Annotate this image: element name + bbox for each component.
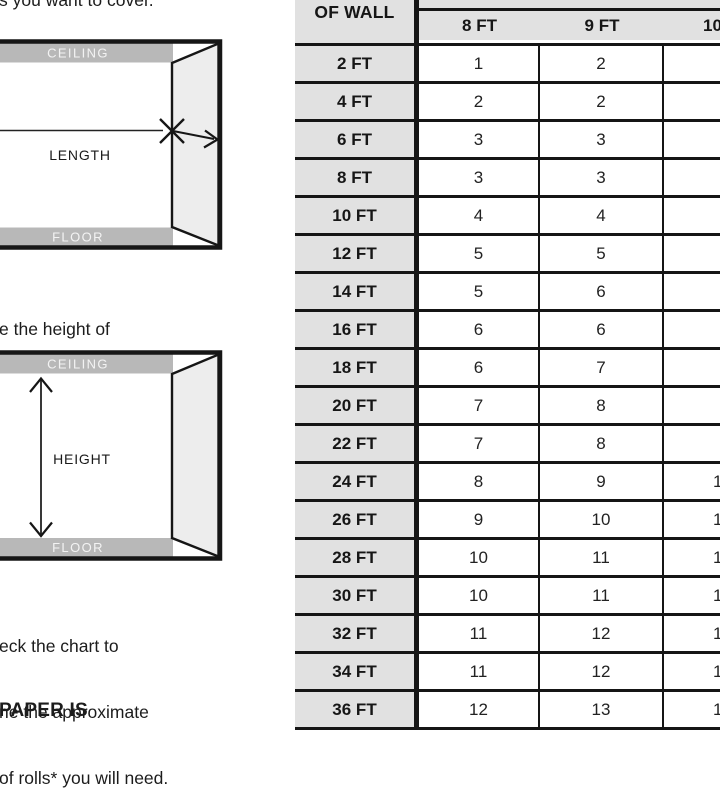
ceiling-label: CEILING [47, 46, 109, 61]
cell-9ft: 12 [540, 654, 664, 689]
cell-9ft: 6 [540, 312, 664, 347]
table-row: 36 FT 12 13 1 [295, 692, 720, 730]
cell-8ft: 2 [419, 84, 540, 119]
table-row: 18 FT 6 7 [295, 350, 720, 388]
length-label: LENGTH [49, 147, 111, 163]
table-row: 22 FT 7 8 [295, 426, 720, 464]
row-label-cell: 36 FT [295, 692, 414, 727]
cell-10ft [664, 198, 720, 233]
header-data-area: 8 FT 9 FT 10 [419, 0, 720, 43]
cell-8ft: 11 [419, 616, 540, 651]
col-header-8ft: 8 FT [419, 11, 540, 40]
side-wall [172, 44, 219, 246]
table-row: 4 FT 2 2 [295, 84, 720, 122]
cell-10ft [664, 274, 720, 309]
corner-header-cell: OF WALL [295, 0, 414, 43]
floor-label: FLOOR [52, 230, 104, 245]
side-wall [172, 355, 219, 557]
cell-10ft: 1 [664, 692, 720, 727]
cell-10ft: 1 [664, 502, 720, 537]
col-header-9ft: 9 FT [540, 11, 664, 40]
cell-9ft: 3 [540, 160, 664, 195]
cell-9ft: 4 [540, 198, 664, 233]
cell-9ft: 2 [540, 84, 664, 119]
table-row: 28 FT 10 11 1 [295, 540, 720, 578]
row-label-cell: 6 FT [295, 122, 414, 157]
table-row: 30 FT 10 11 1 [295, 578, 720, 616]
table-row: 34 FT 11 12 1 [295, 654, 720, 692]
cell-8ft: 7 [419, 426, 540, 461]
row-label-cell: 12 FT [295, 236, 414, 271]
cell-10ft: 1 [664, 540, 720, 575]
table-row: 20 FT 7 8 [295, 388, 720, 426]
cell-10ft: 1 [664, 578, 720, 613]
cell-9ft: 9 [540, 464, 664, 499]
cell-9ft: 12 [540, 616, 664, 651]
row-label-cell: 34 FT [295, 654, 414, 689]
row-label-cell: 20 FT [295, 388, 414, 423]
table-row: 32 FT 11 12 1 [295, 616, 720, 654]
table-row: 10 FT 4 4 [295, 198, 720, 236]
cell-9ft: 10 [540, 502, 664, 537]
cell-8ft: 3 [419, 160, 540, 195]
table-row: 8 FT 3 3 [295, 160, 720, 198]
cell-9ft: 6 [540, 274, 664, 309]
table-row: 14 FT 5 6 [295, 274, 720, 312]
header-top-sliver [419, 0, 720, 8]
row-label-cell: 16 FT [295, 312, 414, 347]
table-row: 16 FT 6 6 [295, 312, 720, 350]
cell-10ft [664, 388, 720, 423]
cell-10ft: 1 [664, 616, 720, 651]
cell-8ft: 5 [419, 236, 540, 271]
cell-10ft: 1 [664, 464, 720, 499]
cell-8ft: 11 [419, 654, 540, 689]
height-label: HEIGHT [53, 451, 111, 467]
rolls-table: OF WALL 8 FT 9 FT 10 2 FT 1 2 4 FT 2 2 6… [295, 0, 720, 730]
table-header: OF WALL 8 FT 9 FT 10 [295, 0, 720, 46]
ceiling-label: CEILING [47, 357, 109, 372]
cell-8ft: 1 [419, 46, 540, 81]
cell-9ft: 8 [540, 426, 664, 461]
table-row: 6 FT 3 3 [295, 122, 720, 160]
cell-10ft [664, 350, 720, 385]
cell-9ft: 2 [540, 46, 664, 81]
cell-10ft: 1 [664, 654, 720, 689]
cell-10ft [664, 312, 720, 347]
cell-9ft: 7 [540, 350, 664, 385]
cell-8ft: 5 [419, 274, 540, 309]
cell-8ft: 10 [419, 578, 540, 613]
cell-8ft: 6 [419, 350, 540, 385]
cell-10ft [664, 426, 720, 461]
table-row: 2 FT 1 2 [295, 46, 720, 84]
cell-8ft: 12 [419, 692, 540, 727]
cell-8ft: 7 [419, 388, 540, 423]
cell-9ft: 11 [540, 578, 664, 613]
room-length-diagram: CEILING FLOOR LENGTH [0, 42, 220, 248]
table-row: 12 FT 5 5 [295, 236, 720, 274]
cell-10ft [664, 84, 720, 119]
table-row: 26 FT 9 10 1 [295, 502, 720, 540]
cell-9ft: 8 [540, 388, 664, 423]
cell-10ft [664, 46, 720, 81]
row-label-cell: 28 FT [295, 540, 414, 575]
row-label-cell: 4 FT [295, 84, 414, 119]
row-label-cell: 26 FT [295, 502, 414, 537]
row-label-cell: 24 FT [295, 464, 414, 499]
row-label-cell: 14 FT [295, 274, 414, 309]
col-header-10ft: 10 [664, 11, 720, 40]
cell-8ft: 4 [419, 198, 540, 233]
cell-10ft [664, 122, 720, 157]
row-label-cell: 22 FT [295, 426, 414, 461]
cell-8ft: 6 [419, 312, 540, 347]
cell-9ft: 11 [540, 540, 664, 575]
row-label-cell: 18 FT [295, 350, 414, 385]
row-label-cell: 30 FT [295, 578, 414, 613]
row-label-cell: 2 FT [295, 46, 414, 81]
cell-8ft: 10 [419, 540, 540, 575]
floor-label: FLOOR [52, 540, 104, 555]
bottom-text-line3: of rolls* you will need. [0, 767, 168, 789]
row-label-cell: 32 FT [295, 616, 414, 651]
row-label-cell: 10 FT [295, 198, 414, 233]
cell-9ft: 13 [540, 692, 664, 727]
cell-9ft: 3 [540, 122, 664, 157]
cell-9ft: 5 [540, 236, 664, 271]
room-height-diagram: CEILING FLOOR HEIGHT [0, 353, 220, 559]
column-headers: 8 FT 9 FT 10 [419, 11, 720, 40]
cell-10ft [664, 236, 720, 271]
cell-8ft: 3 [419, 122, 540, 157]
table-body: 2 FT 1 2 4 FT 2 2 6 FT 3 3 8 FT 3 3 10 F… [295, 46, 720, 730]
cell-10ft [664, 160, 720, 195]
row-label-cell: 8 FT [295, 160, 414, 195]
table-row: 24 FT 8 9 1 [295, 464, 720, 502]
cell-8ft: 8 [419, 464, 540, 499]
cell-8ft: 9 [419, 502, 540, 537]
